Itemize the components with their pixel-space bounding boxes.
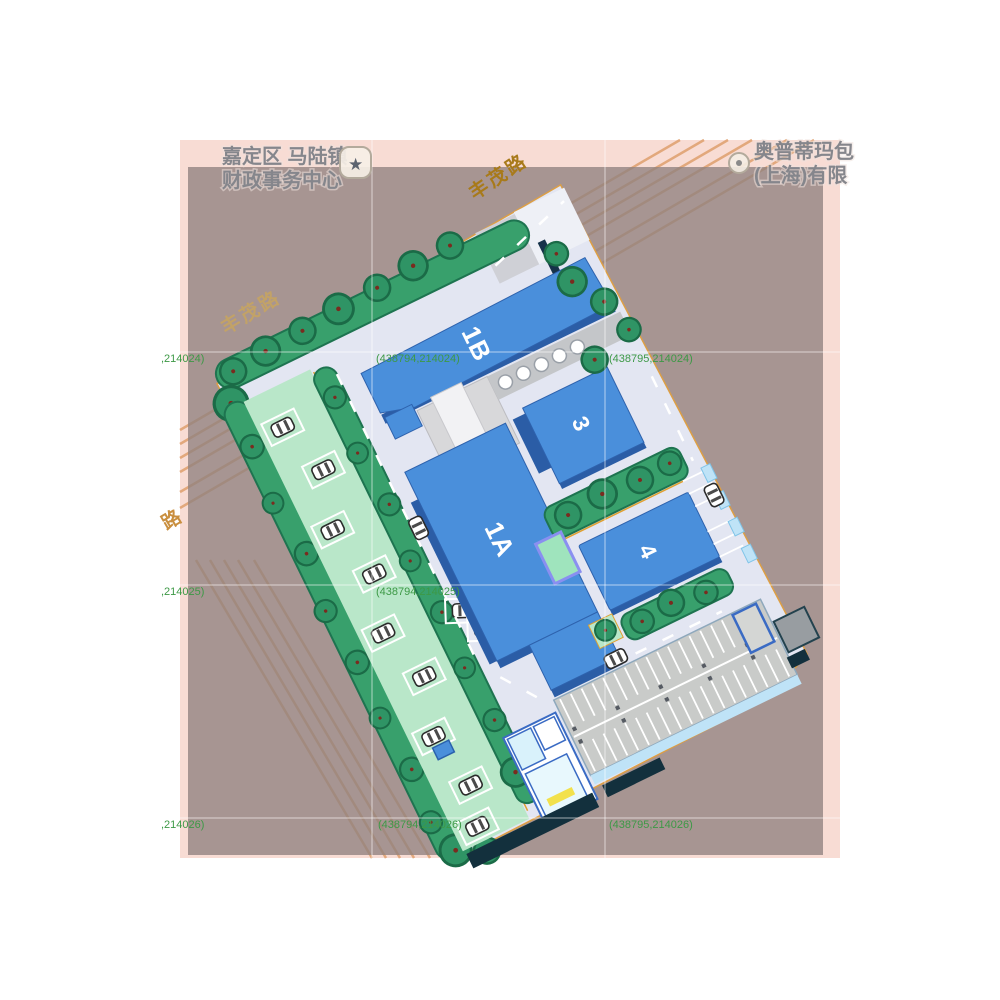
coordinate-label: (438794,214025) (376, 586, 460, 598)
coordinate-label: (438795,214026) (609, 819, 693, 831)
map-screenshot: 1B 1A 3 (0, 0, 1000, 1000)
poi-finance-line2: 财政事务中心 (222, 168, 342, 192)
poi-optima-line2: (上海)有限 (754, 163, 847, 187)
coordinate-label: (438794,214026) (378, 819, 462, 831)
star-badge-icon[interactable]: ★ (340, 147, 371, 178)
poi-finance-line1: 嘉定区 马陆镇 (221, 144, 348, 168)
coordinate-label: (438795,214024) (609, 353, 693, 365)
coordinate-label: ,214026) (161, 819, 204, 831)
star-icon: ★ (348, 155, 363, 174)
coordinate-label: ,214025) (161, 586, 204, 598)
circle-poi-icon[interactable] (729, 153, 749, 173)
coordinate-label: ,214024) (161, 353, 204, 365)
poi-optima-line1: 奥普蒂玛包 (754, 139, 854, 163)
coordinate-label: (438794,214024) (376, 353, 460, 365)
